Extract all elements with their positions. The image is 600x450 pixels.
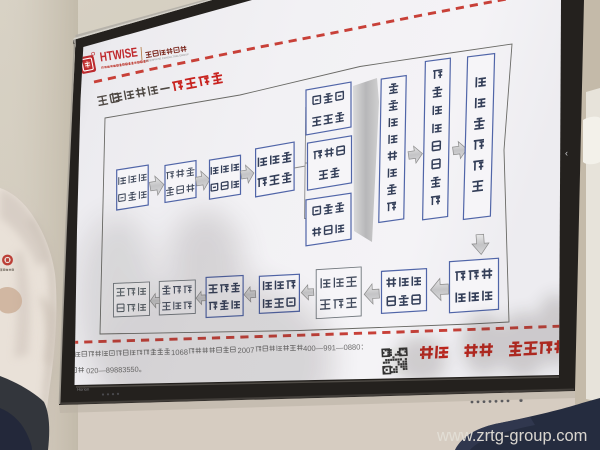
- svg-text:Horion: Horion: [77, 387, 90, 392]
- svg-text:www.zrtg-group.com: www.zrtg-group.com: [436, 427, 587, 445]
- svg-text:‹: ‹: [565, 148, 568, 158]
